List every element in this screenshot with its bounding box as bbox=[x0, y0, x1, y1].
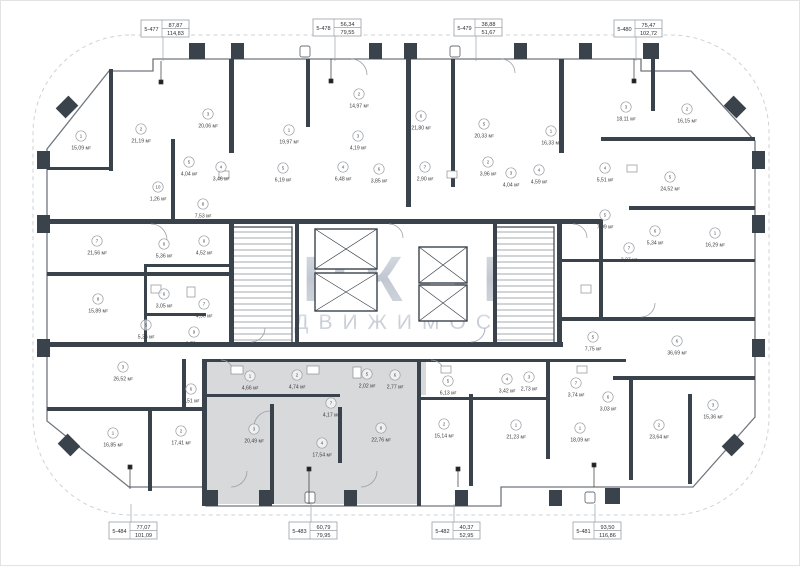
apartment-area-bottom: 116,86 bbox=[599, 533, 616, 539]
room-area: 24,52 м² bbox=[660, 187, 680, 193]
floor-plan-page: ИНКОМ НЕДВИЖИМОСТЬ bbox=[0, 0, 800, 566]
room-area: 18,11 м² bbox=[617, 117, 636, 123]
room-area: 20,33 м² bbox=[474, 134, 494, 140]
apartment-area-top: 56,34 bbox=[341, 22, 355, 28]
apartment-id: 5-477 bbox=[144, 27, 158, 33]
room-area: 17,41 м² bbox=[171, 441, 191, 447]
room-area: 21,19 м² bbox=[131, 139, 151, 145]
apartment-tag-5-479[interactable]: 5-47938,8851,67 bbox=[454, 19, 502, 61]
room-area: 5,51 м² bbox=[597, 178, 614, 184]
room-area: 4,96 м² bbox=[196, 314, 213, 320]
room-area: 3,74 м² bbox=[568, 393, 585, 399]
room-area: 20,49 м² bbox=[244, 439, 264, 445]
room-area: 2,90 м² bbox=[417, 177, 434, 183]
apartment-id: 5-481 bbox=[576, 529, 590, 535]
room-area: 7,75 м² bbox=[585, 347, 602, 353]
apartment-id: 5-482 bbox=[435, 529, 449, 535]
room-area: 4,17 м² bbox=[323, 413, 340, 419]
room-area: 17,54 м² bbox=[312, 453, 332, 459]
room-area: 23,64 м² bbox=[649, 435, 669, 441]
stairwell-left bbox=[232, 227, 292, 343]
floor-plan: ИНКОМ НЕДВИЖИМОСТЬ bbox=[1, 1, 800, 567]
apartment-tag-5-483[interactable]: 5-48360,7979,95 bbox=[289, 504, 337, 539]
apartment-tag-5-478[interactable]: 5-47856,3479,55 bbox=[313, 19, 361, 61]
room-area: 6,13 м² bbox=[440, 391, 457, 397]
room-area: 2,73 м² bbox=[521, 387, 538, 393]
room-area: 3,03 м² bbox=[600, 407, 617, 413]
room-area: 2,02 м² bbox=[359, 384, 376, 390]
apartment-area-bottom: 114,83 bbox=[167, 31, 184, 37]
apartment-area-bottom: 51,67 bbox=[482, 30, 496, 36]
room-area: 7,09 м² bbox=[597, 225, 614, 231]
apartment-area-bottom: 102,72 bbox=[640, 31, 657, 37]
elevator-shaft bbox=[315, 229, 377, 269]
room-area: 6,73 м² bbox=[186, 342, 203, 348]
room-area: 4,04 м² bbox=[503, 183, 520, 189]
room-area: 16,85 м² bbox=[103, 443, 123, 449]
room-area: 5,36 м² bbox=[156, 254, 173, 260]
elevator-shaft bbox=[419, 285, 467, 321]
room-area: 4,52 м² bbox=[196, 251, 213, 257]
room-area: 19,97 м² bbox=[279, 140, 299, 146]
elevator-shaft bbox=[419, 247, 467, 283]
apartment-tag-5-481[interactable]: 5-48193,50116,86 bbox=[573, 504, 621, 539]
selected-apartment-region[interactable] bbox=[204, 361, 426, 504]
room-area: 21,80 м² bbox=[411, 126, 431, 132]
apartment-area-bottom: 79,55 bbox=[341, 30, 355, 36]
apartment-id: 5-478 bbox=[316, 26, 330, 32]
apartment-id: 5-479 bbox=[457, 26, 471, 32]
room-area: 18,09 м² bbox=[570, 438, 590, 444]
room-area: 2,77 м² bbox=[387, 385, 404, 391]
apartment-area-top: 38,88 bbox=[482, 22, 496, 28]
apartment-area-top: 60,79 bbox=[317, 525, 331, 531]
apartment-area-top: 40,37 bbox=[460, 525, 474, 531]
room-area: 15,89 м² bbox=[88, 309, 108, 315]
stairwell-right bbox=[496, 227, 554, 343]
room-area: 15,14 м² bbox=[434, 434, 454, 440]
room-area: 7,53 м² bbox=[195, 214, 212, 220]
room-area: 5,36 м² bbox=[138, 335, 155, 341]
room-area: 21,56 м² bbox=[87, 251, 107, 257]
room-area: 5,34 м² bbox=[647, 241, 664, 247]
room-area: 16,29 м² bbox=[705, 243, 725, 249]
apartment-id: 5-480 bbox=[617, 27, 631, 33]
room-area: 21,23 м² bbox=[506, 435, 526, 441]
room-number: 10 bbox=[156, 185, 161, 190]
room-area: 4,19 м² bbox=[350, 146, 367, 152]
room-area: 1,26 м² bbox=[150, 197, 167, 203]
room-area: 3,46 м² bbox=[213, 177, 230, 183]
room-area: 3,96 м² bbox=[480, 172, 497, 178]
room-area: 16,33 м² bbox=[541, 141, 561, 147]
apartment-area-bottom: 79,95 bbox=[317, 533, 331, 539]
apartment-area-top: 93,50 bbox=[601, 525, 615, 531]
apartment-id: 5-484 bbox=[112, 529, 126, 535]
room-area: 3,85 м² bbox=[371, 179, 388, 185]
apartment-area-top: 75,47 bbox=[642, 23, 656, 29]
apartment-area-bottom: 52,95 bbox=[460, 533, 474, 539]
room-area: 3,51 м² bbox=[183, 399, 200, 405]
apartment-tag-5-482[interactable]: 5-48240,3752,95 bbox=[432, 504, 480, 539]
room-area: 4,59 м² bbox=[531, 180, 548, 186]
room-area: 22,76 м² bbox=[371, 438, 391, 444]
room-area: 36,69 м² bbox=[667, 351, 687, 357]
room-area: 6,19 м² bbox=[275, 178, 292, 184]
apartment-area-top: 87,87 bbox=[169, 23, 183, 29]
room-area: 4,66 м² bbox=[242, 386, 259, 392]
apartment-id: 5-483 bbox=[292, 529, 306, 535]
room-area: 15,09 м² bbox=[71, 146, 91, 152]
room-area: 3,42 м² bbox=[499, 389, 516, 395]
apartment-tag-5-484[interactable]: 5-48477,07101,09 bbox=[109, 504, 157, 539]
room-area: 3,05 м² bbox=[156, 304, 173, 310]
elevator-shaft bbox=[315, 273, 377, 311]
apartment-tag-5-477[interactable]: 5-47787,87114,83 bbox=[141, 20, 189, 61]
room-area: 14,97 м² bbox=[349, 104, 369, 110]
room-area: 15,36 м² bbox=[703, 415, 723, 421]
apartment-area-top: 77,07 bbox=[137, 525, 151, 531]
room-area: 4,04 м² bbox=[181, 172, 198, 178]
room-area: 4,74 м² bbox=[289, 385, 306, 391]
room-area: 3,27 м² bbox=[621, 258, 638, 264]
apartment-area-bottom: 101,09 bbox=[135, 533, 152, 539]
room-area: 16,15 м² bbox=[677, 119, 697, 125]
room-area: 26,52 м² bbox=[113, 377, 133, 383]
room-area: 20,06 м² bbox=[198, 124, 218, 130]
room-area: 6,48 м² bbox=[335, 177, 352, 183]
